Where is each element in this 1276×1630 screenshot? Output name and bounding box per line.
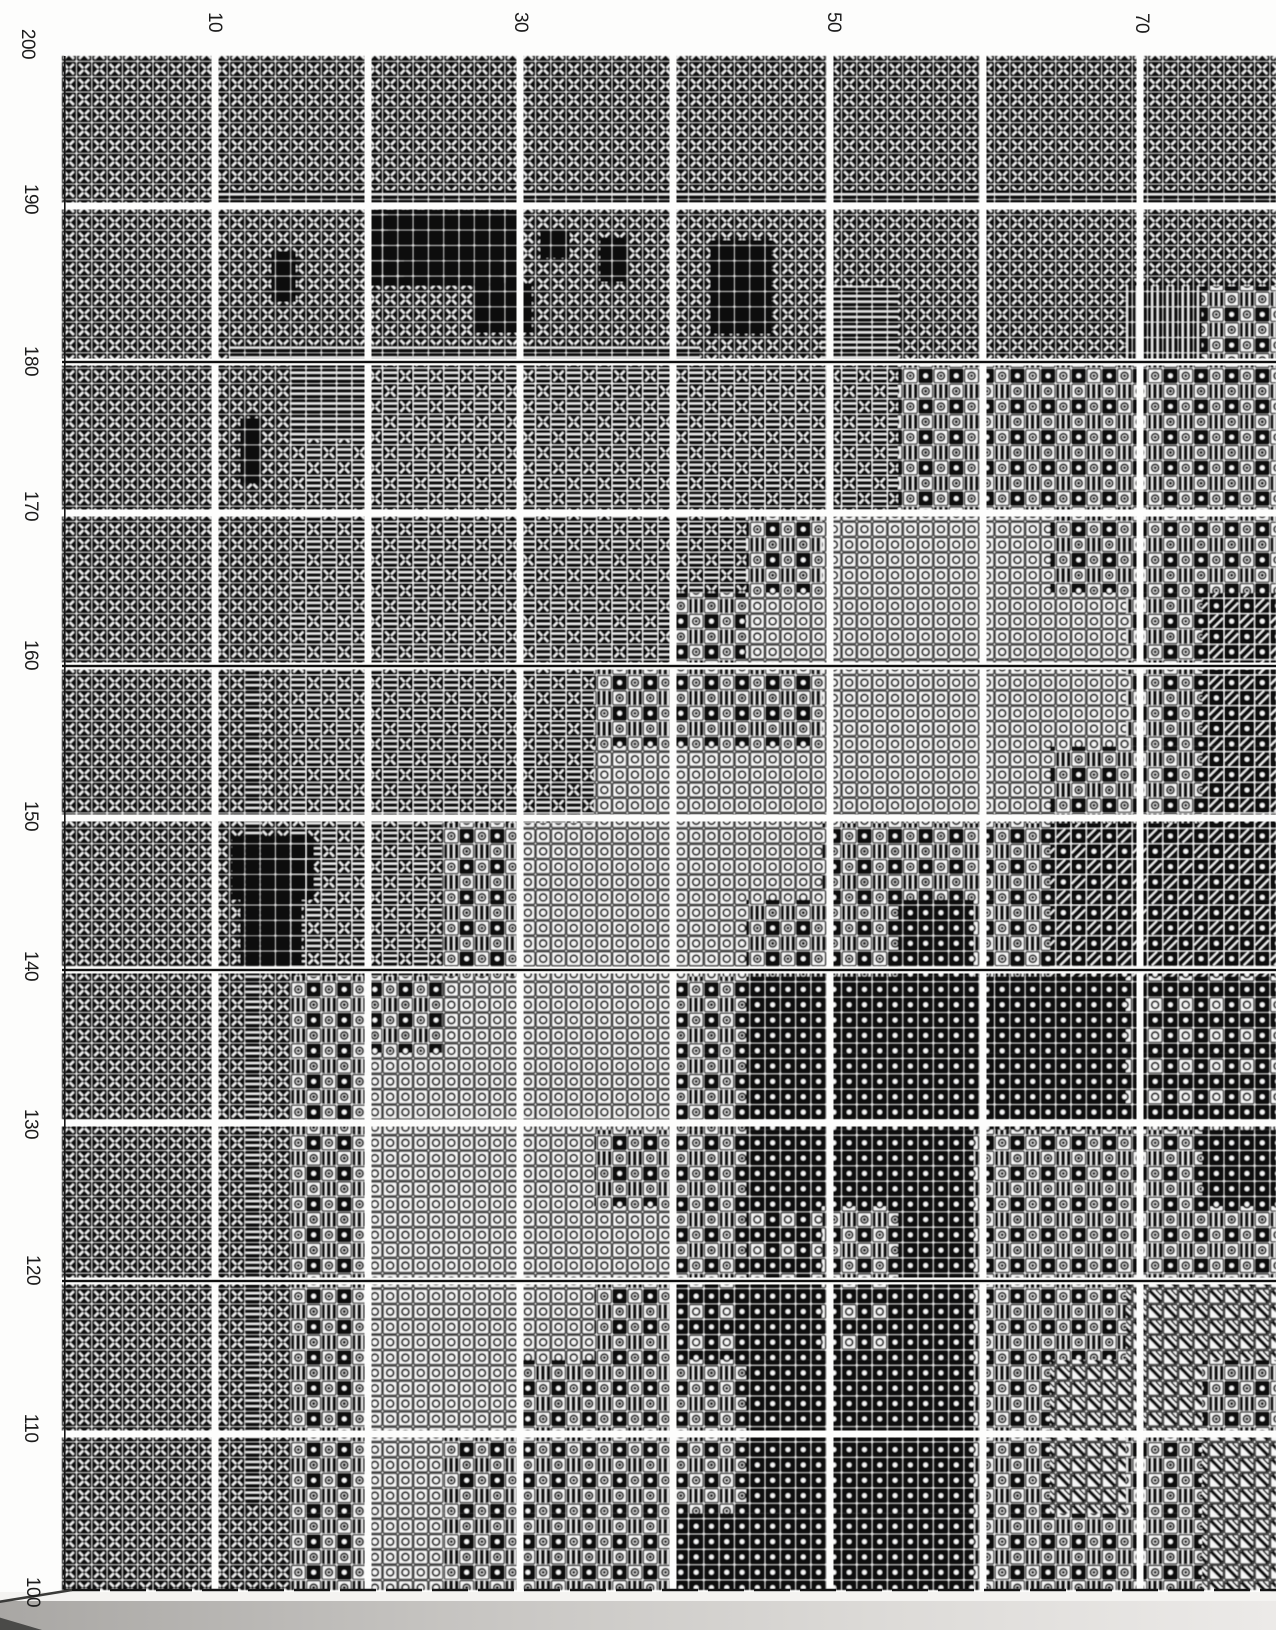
svg-text:140: 140 <box>20 951 41 981</box>
svg-text:160: 160 <box>20 640 41 670</box>
svg-text:50: 50 <box>823 12 844 32</box>
svg-text:30: 30 <box>510 12 531 32</box>
svg-text:180: 180 <box>20 346 41 376</box>
svg-text:190: 190 <box>20 184 41 214</box>
svg-text:130: 130 <box>20 1109 41 1139</box>
svg-text:70: 70 <box>1131 13 1152 33</box>
svg-text:170: 170 <box>20 491 41 521</box>
svg-text:150: 150 <box>20 801 41 831</box>
svg-text:200: 200 <box>17 29 38 59</box>
svg-text:120: 120 <box>22 1255 43 1285</box>
svg-text:100: 100 <box>22 1577 43 1607</box>
svg-text:10: 10 <box>204 12 225 32</box>
svg-text:110: 110 <box>20 1414 41 1443</box>
